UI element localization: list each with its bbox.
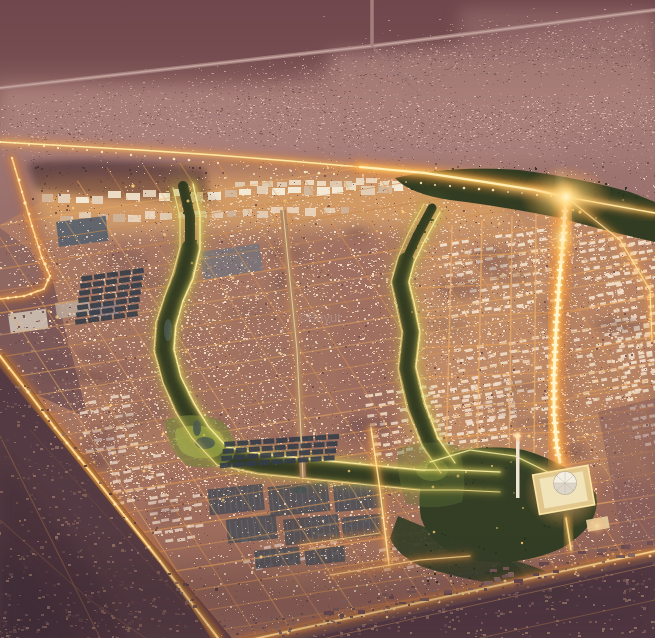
svg-text:©Bayut: ©Bayut xyxy=(298,310,341,325)
